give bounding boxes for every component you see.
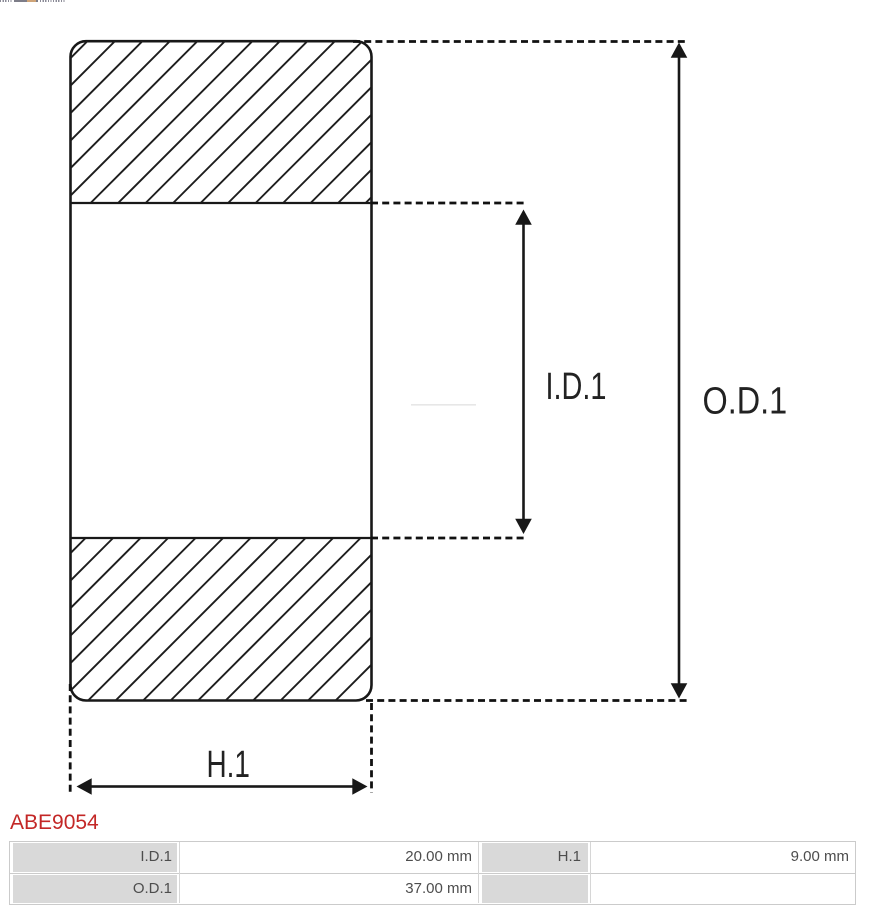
svg-text:O.D.1: O.D.1 xyxy=(703,380,788,422)
svg-text:H.1: H.1 xyxy=(207,744,250,786)
svg-text:I.D.1: I.D.1 xyxy=(546,365,607,408)
